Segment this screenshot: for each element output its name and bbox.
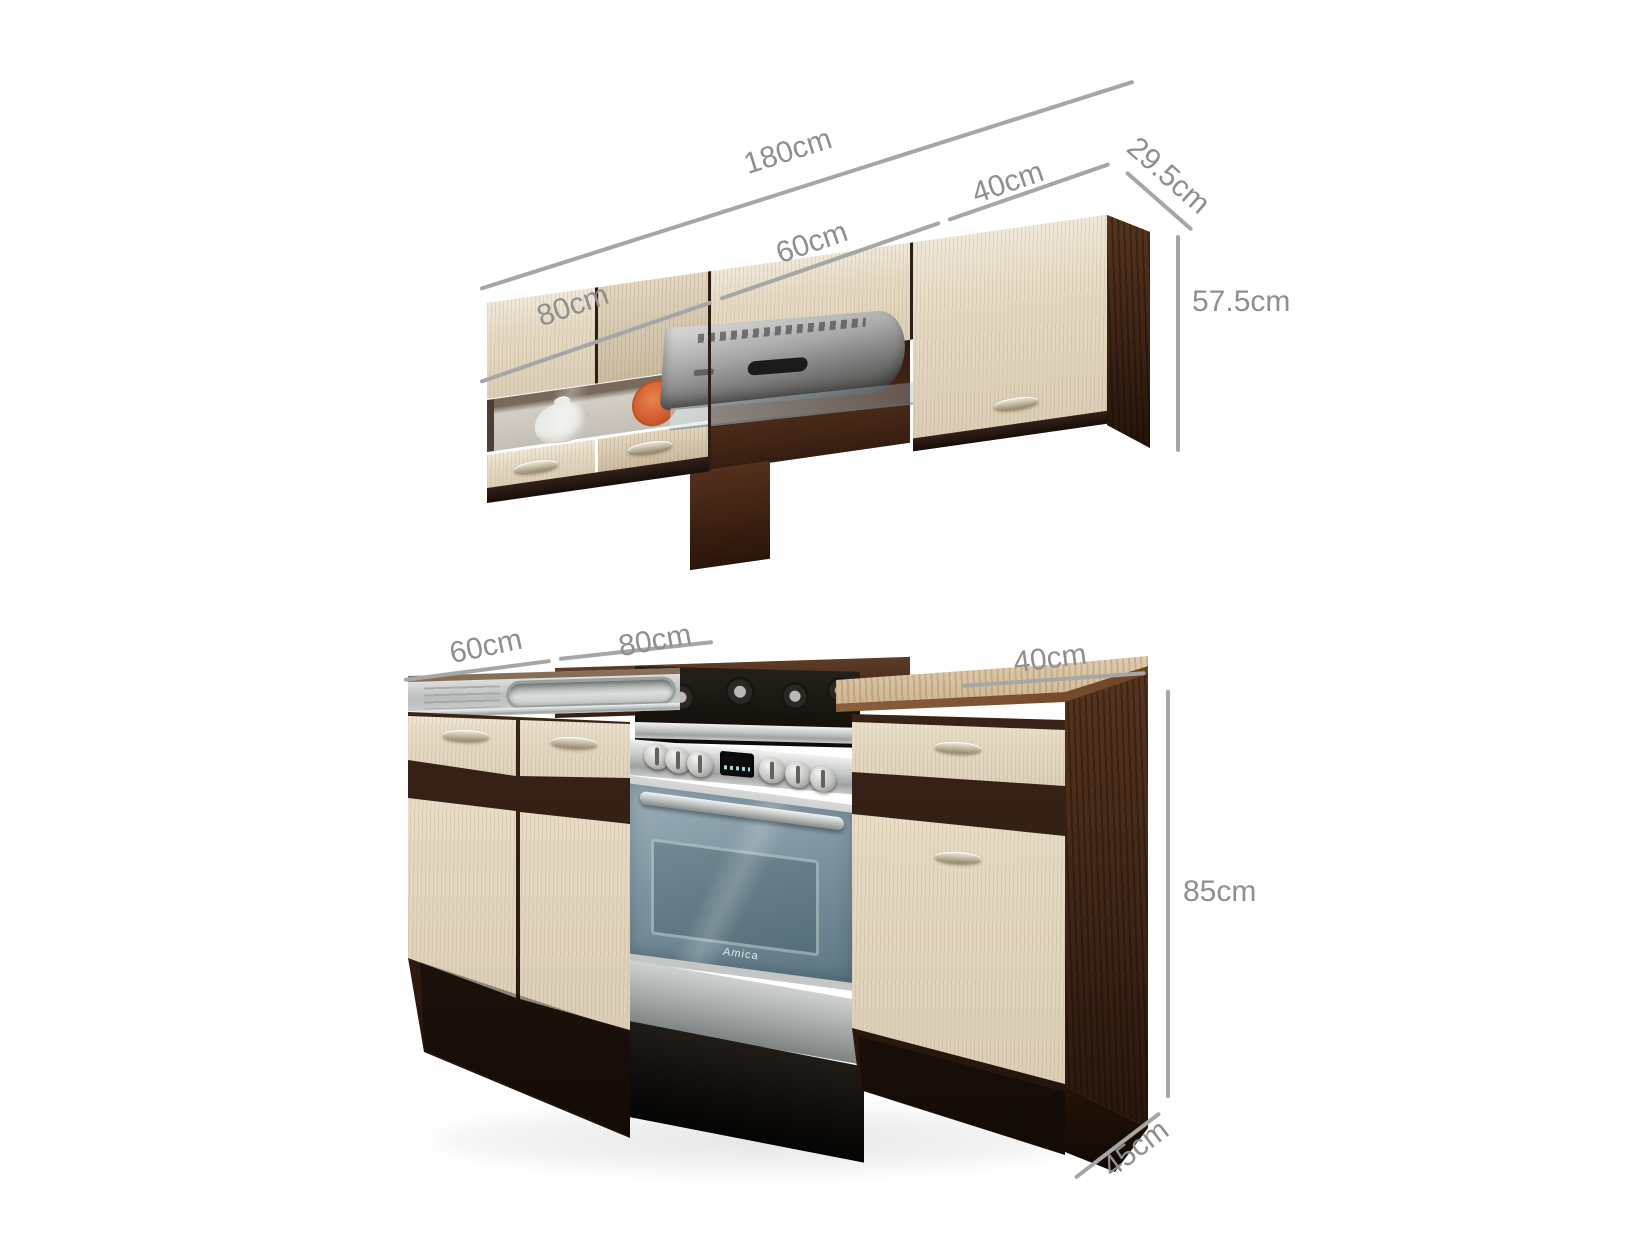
base-right-side-panel (1065, 666, 1148, 1166)
dim-label-total-width: 180cm (740, 122, 836, 182)
oven-door: Amica (618, 774, 864, 992)
kitchen-set-photo: 180cm 80cm 60cm 40cm 29.5cm 57.5cm Amica (0, 0, 1650, 1237)
oven-knob (785, 761, 811, 789)
hob-front-lip (635, 722, 860, 744)
base-right-cabinet (852, 708, 1065, 1160)
wall-unit-side-panel (1107, 215, 1150, 448)
dim-line-wall-height (1176, 235, 1180, 452)
dim-label-wall-height: 57.5cm (1192, 285, 1290, 319)
base-left-cabinet (408, 710, 630, 1140)
dim-label-base-middle: 80cm (616, 618, 694, 664)
dim-line-base-height (1166, 690, 1170, 1098)
oven-knob (810, 765, 836, 793)
oven-display (720, 751, 754, 778)
oven-knob (759, 756, 785, 784)
dim-label-wall-right: 40cm (968, 155, 1048, 211)
oven-knob (687, 750, 713, 778)
oven-display-dots (724, 765, 750, 771)
hood-alcove-side (690, 461, 770, 570)
drainer-grooves (424, 685, 500, 709)
door-gap (910, 242, 913, 339)
dim-label-base-height: 85cm (1183, 875, 1256, 909)
hood-control-handle (747, 357, 808, 376)
burner (781, 682, 809, 711)
burner (725, 676, 755, 707)
